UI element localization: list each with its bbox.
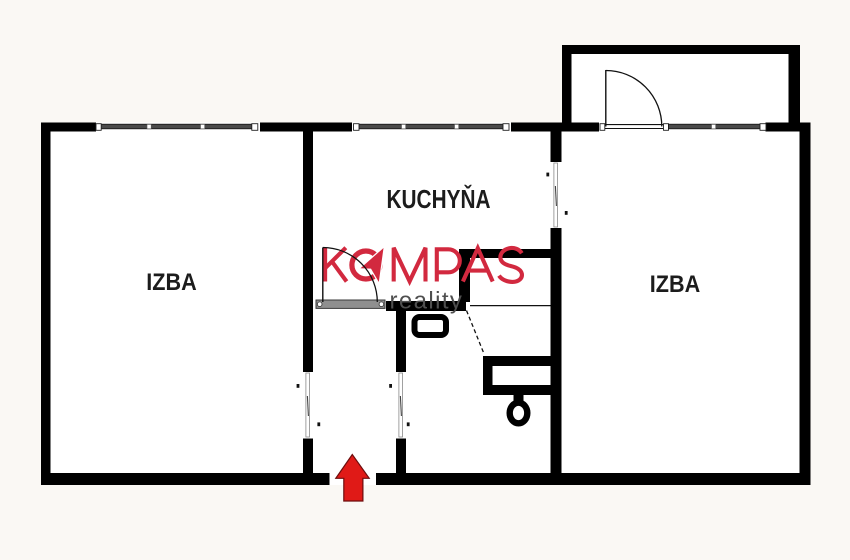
svg-text:KUCHYŇA: KUCHYŇA	[387, 184, 491, 214]
svg-text:IZBA: IZBA	[146, 268, 196, 295]
svg-text:reality: reality	[390, 288, 464, 315]
svg-text:IZBA: IZBA	[650, 270, 700, 297]
